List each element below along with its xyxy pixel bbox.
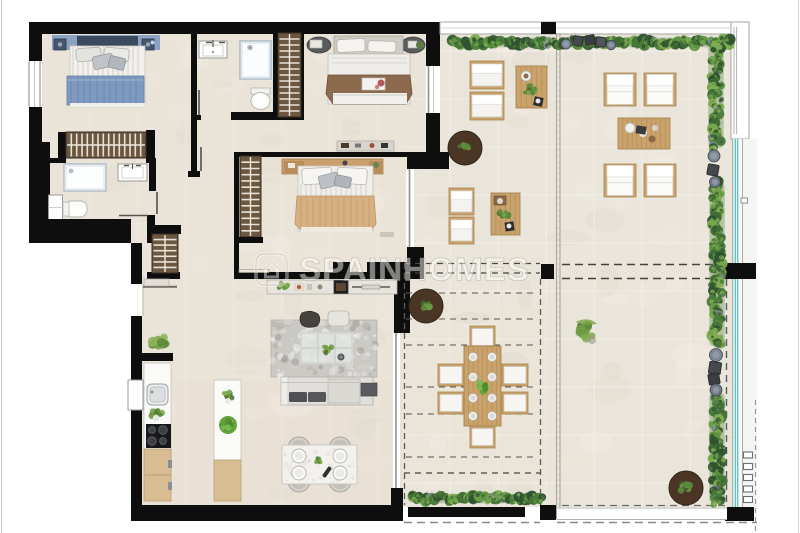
svg-text:SPAINHOMES: SPAINHOMES	[299, 252, 530, 288]
